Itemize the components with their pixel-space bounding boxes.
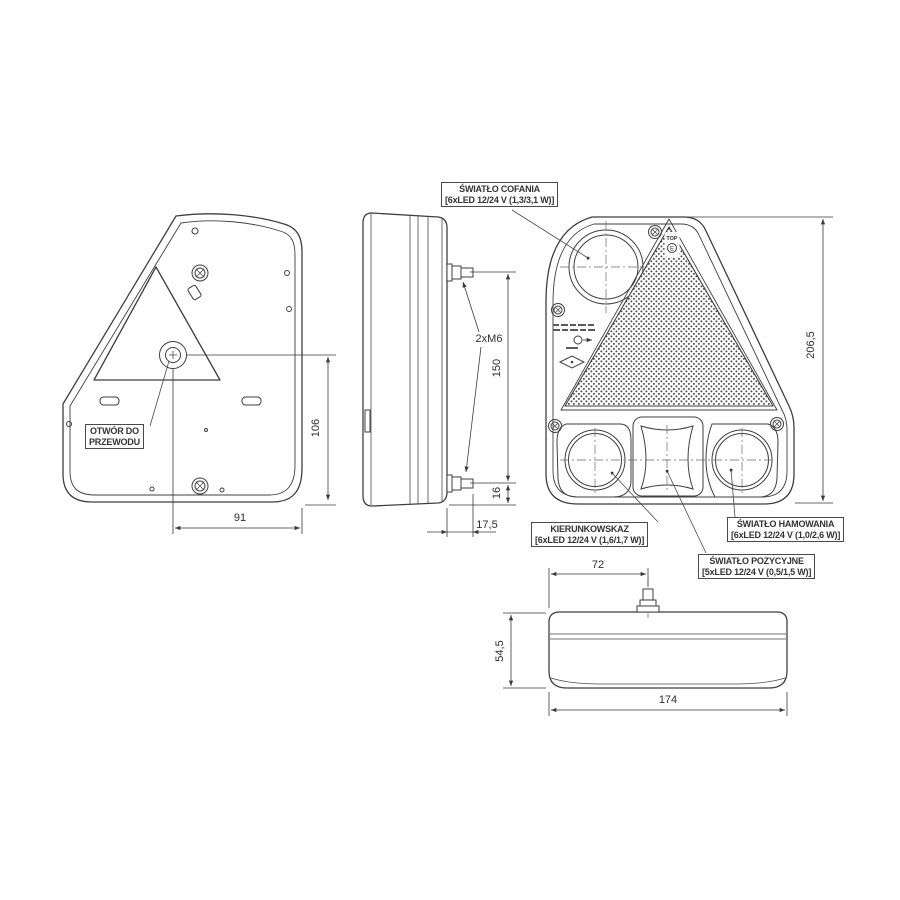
callout-reversing-light: ŚWIATŁO COFANIA [6xLED 12/24 V (1,3/3,1 … bbox=[441, 182, 558, 207]
back-dimension-91: 91 bbox=[173, 368, 302, 534]
dim-front-height: 206,5 bbox=[805, 331, 817, 359]
side-mounting-bolt-top bbox=[447, 264, 473, 281]
view-back: 106 91 bbox=[63, 214, 336, 534]
callout-position-line2: [5xLED 12/24 V (0,5/1,5 W)] bbox=[702, 567, 811, 578]
callout-brake-line2: [6xLED 12/24 V (1,0/2,6 W)] bbox=[731, 530, 840, 541]
top-outer-contour bbox=[549, 612, 787, 688]
front-reflector-triangle: TOP E bbox=[561, 219, 777, 410]
top-dimension-54-5: 54,5 bbox=[494, 613, 546, 688]
callout-cable-hole-line1: OTWÓR DO bbox=[89, 426, 140, 437]
bolt-spec-text: 2xM6 bbox=[476, 333, 503, 345]
dim-top-depth: 54,5 bbox=[494, 640, 506, 661]
top-lens-seam-lines bbox=[550, 634, 786, 684]
side-dimension-17-5: 17,5 bbox=[427, 494, 498, 537]
back-cable-hole bbox=[160, 342, 187, 369]
reflector-top-label: TOP bbox=[666, 236, 678, 242]
dim-back-height: 106 bbox=[310, 419, 322, 437]
front-bottom-compartments bbox=[557, 417, 778, 497]
technical-drawing-canvas: 106 91 150 16 bbox=[0, 0, 900, 900]
side-mounting-bolt-bottom bbox=[447, 475, 473, 492]
back-dimension-106: 106 bbox=[186, 355, 336, 505]
side-outer-contour bbox=[363, 213, 447, 506]
callout-cable-hole: OTWÓR DO PRZEWODU bbox=[85, 424, 144, 449]
dim-back-width: 91 bbox=[234, 512, 246, 524]
dim-bolt-to-bottom: 16 bbox=[491, 487, 503, 499]
callout-turn-line2: [6xLED 12/24 V (1,6/1,7 W)] bbox=[535, 535, 644, 546]
callout-brake-light: ŚWIATŁO HAMOWANIA [6xLED 12/24 V (1,0/2,… bbox=[727, 517, 844, 542]
callout-reversing-line1: ŚWIATŁO COFANIA bbox=[445, 184, 554, 195]
callout-position-light: ŚWIATŁO POZYCYJNE [5xLED 12/24 V (0,5/1,… bbox=[698, 554, 815, 579]
reflector-e-mark: E bbox=[670, 247, 674, 253]
callout-reversing-line2: [6xLED 12/24 V (1,3/3,1 W)] bbox=[445, 195, 554, 206]
callout-brake-line1: ŚWIATŁO HAMOWANIA bbox=[731, 519, 840, 530]
callout-position-line1: ŚWIATŁO POZYCYJNE bbox=[702, 556, 811, 567]
side-dimension-150-16: 150 16 bbox=[449, 272, 516, 505]
manufacturer-diamond-logo bbox=[560, 356, 584, 368]
view-side: 150 16 17,5 2xM6 bbox=[363, 213, 516, 537]
callout-turn-signal: KIERUNKOWSKAZ [6xLED 12/24 V (1,6/1,7 W)… bbox=[531, 522, 648, 547]
view-top: 72 54,5 174 bbox=[494, 559, 787, 716]
top-dimension-72: 72 bbox=[549, 559, 648, 608]
dim-bolt-offset: 72 bbox=[592, 559, 604, 571]
back-warning-triangle-cutout bbox=[94, 267, 220, 380]
callout-cable-hole-line2: PRZEWODU bbox=[89, 437, 140, 448]
e-mark-arrow-icon bbox=[574, 336, 592, 344]
side-lens-seam-lines bbox=[365, 214, 442, 505]
top-dimension-174: 174 bbox=[549, 692, 787, 716]
cable-hole-leader-line bbox=[150, 361, 169, 426]
dim-bolt-length: 17,5 bbox=[476, 519, 497, 531]
reflector-top-mark: TOP E bbox=[665, 232, 680, 257]
back-inner-contour bbox=[70, 221, 295, 495]
view-front: TOP E bbox=[512, 210, 833, 553]
callout-turn-line1: KIERUNKOWSKAZ bbox=[535, 524, 644, 535]
dim-bolt-spacing: 150 bbox=[491, 359, 503, 377]
dim-top-width: 174 bbox=[659, 694, 677, 706]
lamp-drawing-svg: 106 91 150 16 bbox=[0, 0, 900, 900]
